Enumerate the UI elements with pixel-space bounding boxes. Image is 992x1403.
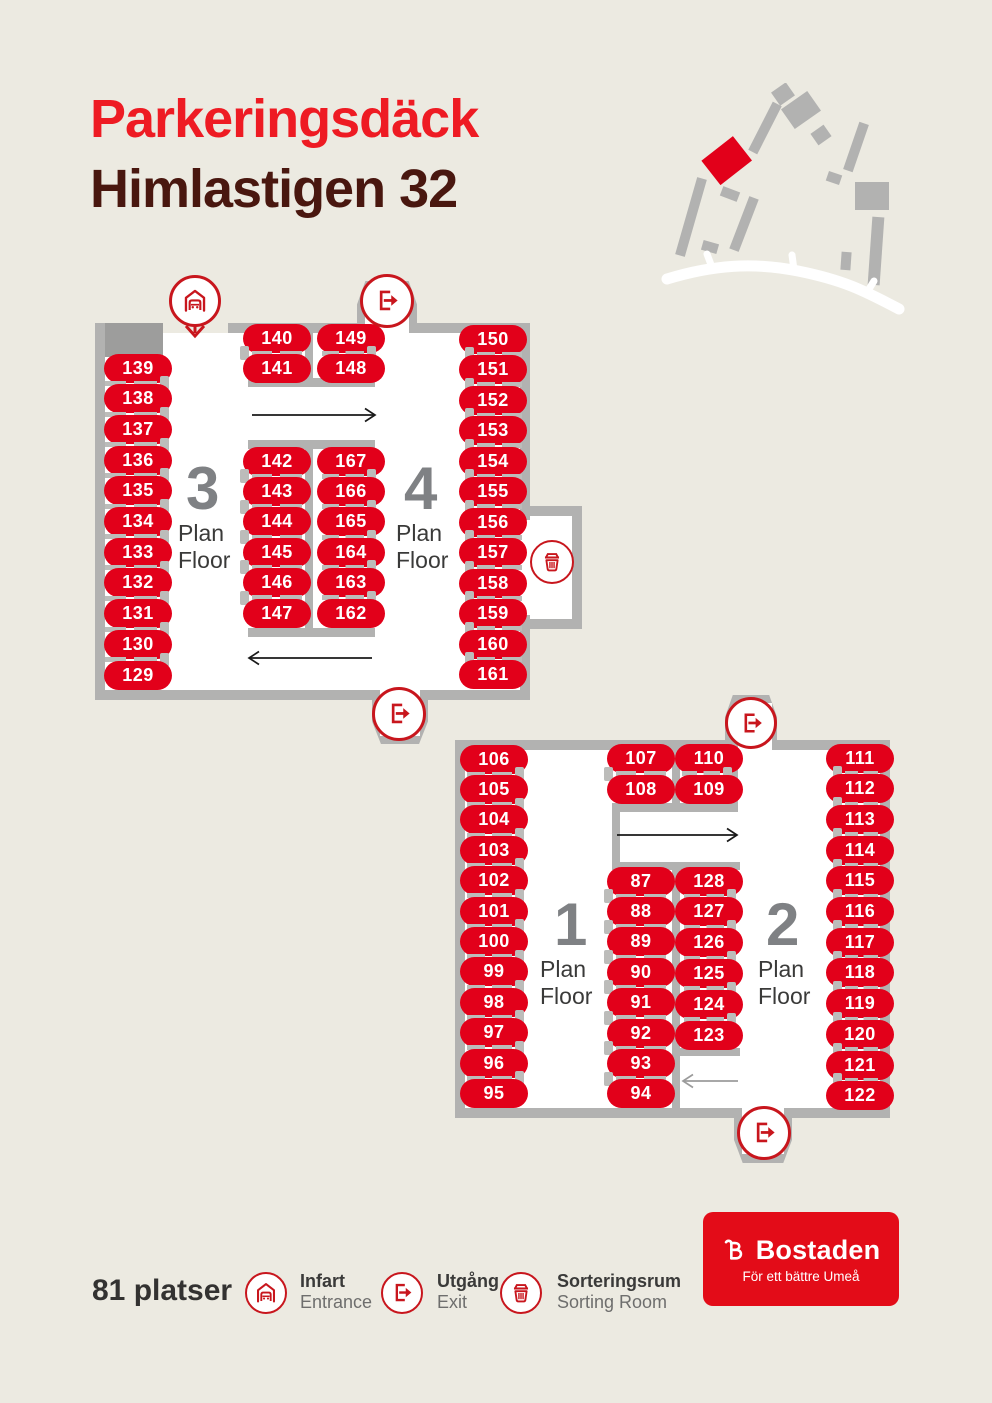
parking-spot-122: 122 bbox=[826, 1081, 894, 1110]
parking-spot-88: 88 bbox=[607, 897, 675, 926]
direction-arrow bbox=[248, 647, 376, 669]
parking-spot-95: 95 bbox=[460, 1079, 528, 1108]
parking-spot-144: 144 bbox=[243, 507, 311, 536]
exit-icon bbox=[737, 1106, 791, 1160]
parking-spot-141: 141 bbox=[243, 354, 311, 383]
site-map-highlighted-building bbox=[701, 136, 752, 185]
parking-spot-140: 140 bbox=[243, 324, 311, 353]
legend-exit-en: Exit bbox=[437, 1292, 467, 1313]
parking-spot-108: 108 bbox=[607, 775, 675, 804]
parking-spot-142: 142 bbox=[243, 447, 311, 476]
parking-spot-148: 148 bbox=[317, 354, 385, 383]
parking-spot-109: 109 bbox=[675, 775, 743, 804]
direction-arrow bbox=[250, 404, 378, 426]
brand-name: Bostaden bbox=[756, 1235, 881, 1266]
upper-plan-entry-slab bbox=[95, 323, 163, 357]
parking-spot-90: 90 bbox=[607, 958, 675, 987]
wall bbox=[455, 1108, 742, 1118]
title-line1: Parkeringsdäck bbox=[90, 84, 478, 154]
legend-sorting-en: Sorting Room bbox=[557, 1292, 667, 1313]
brand-tagline: För ett bättre Umeå bbox=[742, 1269, 859, 1284]
floor-label-4: 4 Plan Floor bbox=[396, 458, 448, 574]
bostaden-b-icon bbox=[722, 1237, 749, 1264]
exit-icon bbox=[360, 274, 414, 328]
parking-spot-87: 87 bbox=[607, 867, 675, 896]
wall bbox=[612, 803, 738, 812]
parking-spot-93: 93 bbox=[607, 1049, 675, 1078]
exit-icon bbox=[372, 687, 426, 741]
site-map bbox=[653, 83, 949, 321]
parking-spot-107: 107 bbox=[607, 744, 675, 773]
title-line2: Himlastigen 32 bbox=[90, 154, 478, 224]
wall bbox=[95, 690, 380, 700]
direction-arrow bbox=[682, 1070, 742, 1092]
parking-spot-94: 94 bbox=[607, 1079, 675, 1108]
floor-label-2: 2 Plan Floor bbox=[758, 894, 810, 1010]
total-spaces-label: 81 platser bbox=[92, 1274, 232, 1308]
parking-spot-123: 123 bbox=[675, 1021, 743, 1050]
parking-spot-89: 89 bbox=[607, 927, 675, 956]
legend-sorting-sv: Sorteringsrum bbox=[557, 1271, 681, 1292]
parking-spot-147: 147 bbox=[243, 599, 311, 628]
floor-label-3: 3 Plan Floor bbox=[178, 458, 230, 574]
legend-entrance-en: Entrance bbox=[300, 1292, 372, 1313]
entrance-icon bbox=[169, 275, 221, 327]
direction-arrow bbox=[615, 824, 740, 846]
bostaden-logo: Bostaden För ett bättre Umeå bbox=[703, 1212, 899, 1306]
page-title: Parkeringsdäck Himlastigen 32 bbox=[90, 84, 478, 224]
parking-spot-146: 146 bbox=[243, 568, 311, 597]
site-map-road bbox=[667, 254, 899, 309]
wall bbox=[248, 628, 375, 637]
parking-spot-143: 143 bbox=[243, 477, 311, 506]
parking-spot-145: 145 bbox=[243, 538, 311, 567]
parking-spot-110: 110 bbox=[675, 744, 743, 773]
parking-spot-91: 91 bbox=[607, 988, 675, 1017]
sorting-icon bbox=[500, 1272, 542, 1314]
entrance-icon bbox=[245, 1272, 287, 1314]
legend-entrance-sv: Infart bbox=[300, 1271, 345, 1292]
parking-spot-161: 161 bbox=[459, 660, 527, 689]
wall bbox=[420, 690, 530, 700]
exit-icon bbox=[725, 697, 777, 749]
sorting-room-icon bbox=[530, 540, 574, 584]
parking-spot-129: 129 bbox=[104, 661, 172, 690]
floor-label-1: 1 Plan Floor bbox=[540, 894, 592, 1010]
exit-icon bbox=[381, 1272, 423, 1314]
parking-spot-92: 92 bbox=[607, 1019, 675, 1048]
parking-spot-162: 162 bbox=[317, 599, 385, 628]
parking-map-poster: Parkeringsdäck Himlastigen 32 bbox=[0, 0, 992, 1403]
legend-exit-sv: Utgång bbox=[437, 1271, 499, 1292]
